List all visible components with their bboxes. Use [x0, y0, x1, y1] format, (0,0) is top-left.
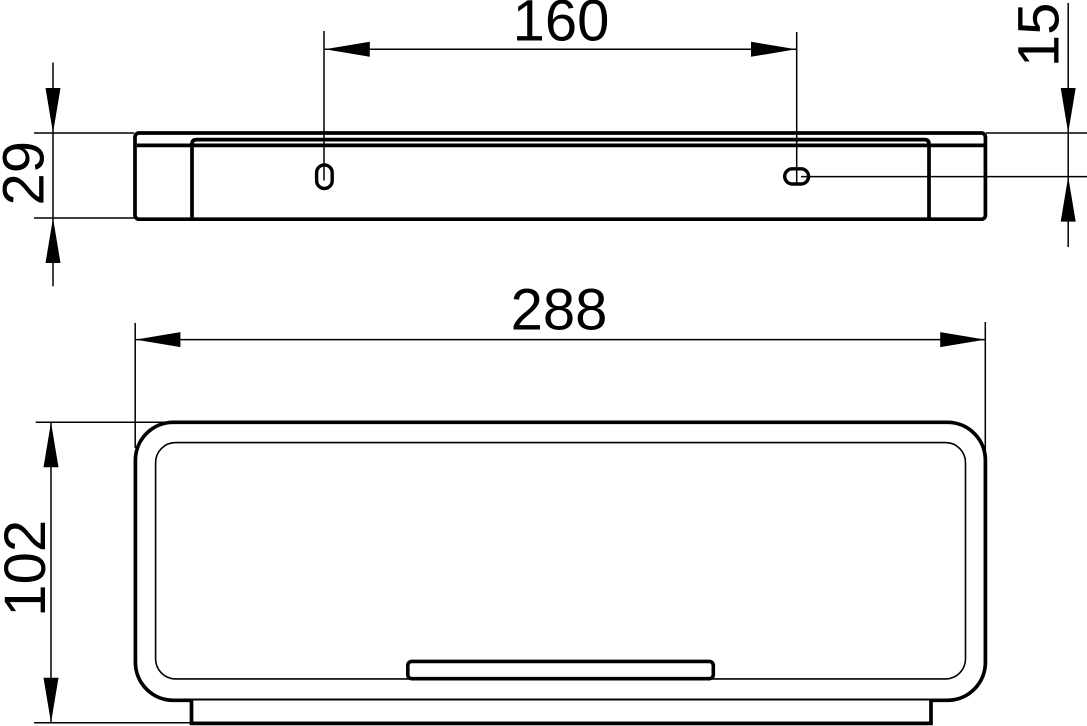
- svg-text:288: 288: [511, 278, 608, 343]
- svg-text:160: 160: [513, 0, 610, 54]
- svg-text:29: 29: [0, 141, 56, 206]
- svg-text:15: 15: [1007, 3, 1072, 68]
- svg-text:102: 102: [0, 520, 58, 617]
